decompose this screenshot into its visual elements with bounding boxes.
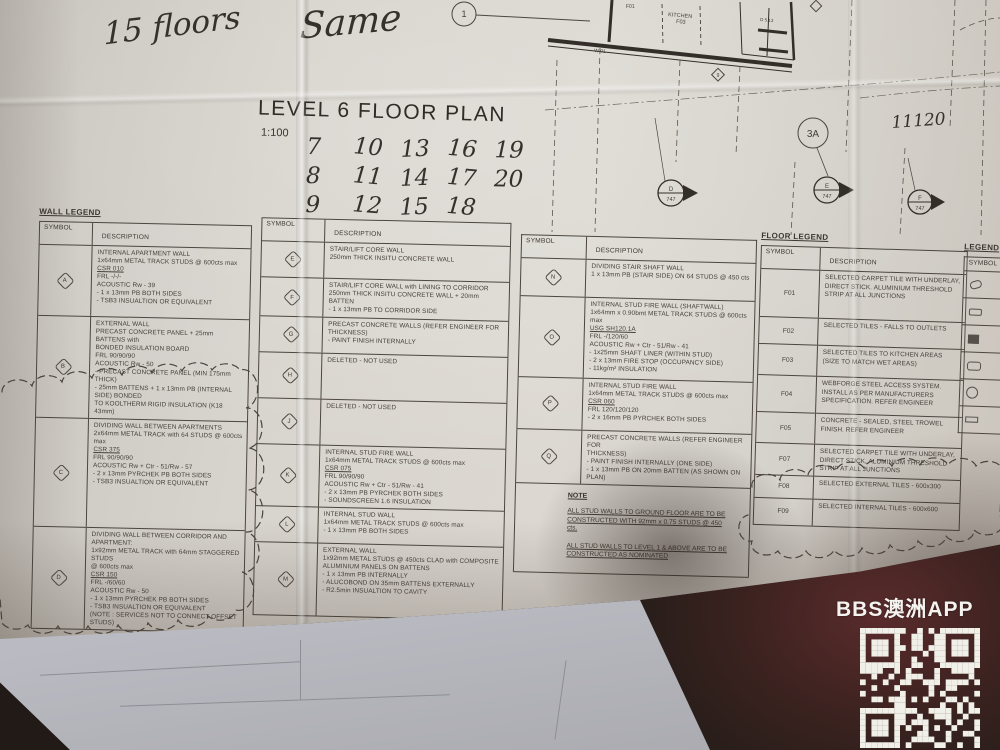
wall-symbol-badge: M [276, 570, 294, 588]
legend-row: HDELETED - NOT USED [258, 351, 507, 403]
symbol-cell: A [38, 245, 92, 316]
svg-text:747: 747 [822, 194, 831, 200]
section-marker-e: E 747 [814, 177, 854, 203]
symbol-cell: D [32, 527, 87, 629]
description-cell: INTERNAL STUD FIRE WALL1x64mm METAL TRAC… [582, 379, 752, 434]
handwritten-number: 12 [351, 191, 400, 221]
description-cell: INTERNAL STUD WALL1x64mm METAL TRACK STU… [318, 508, 504, 547]
floor-code-f01: F01 [626, 4, 635, 10]
description-text: CONCRETE - SEALED, STEEL TROWEL FINISH. … [820, 417, 957, 438]
description-cell: DELETED - NOT USED [320, 400, 506, 449]
handwritten-number: 10 [352, 133, 401, 163]
watermark-brand: BBS澳洲APP [836, 593, 974, 623]
symbol-cell: H [258, 352, 322, 398]
legend-row: LINTERNAL STUD WALL1x64mm METAL TRACK ST… [255, 505, 504, 547]
drawing-scale: 1:100 [261, 127, 289, 140]
description-cell: DIVIDING STAIR SHAFT WALL1 x 13mm PB (ST… [586, 260, 756, 301]
description-text: WEBFORGE STEEL ACCESS SYSTEM. INSTALL AS… [821, 380, 959, 410]
description-text: SELECTED TILES - FALLS TO OUTLETS [823, 322, 960, 335]
legend-row: F05CONCRETE - SEALED, STEEL TROWEL FINIS… [756, 411, 962, 448]
wall-symbol-badge: N [544, 268, 562, 286]
description-cell: CONCRETE - SEALED, STEEL TROWEL FINISH. … [815, 414, 962, 448]
description-text: SELECTED TILES TO KITCHEN AREAS (SIZE TO… [822, 349, 959, 370]
description-line: DELETED - NOT USED [326, 403, 502, 415]
description-cell: DIVIDING WALL BETWEEN CORRIDOR AND APART… [85, 528, 245, 632]
floor-legend-table: SYMBOLDESCRIPTIONF01SELECTED CARPET TILE… [753, 245, 968, 531]
legend-symbol-glyph [968, 334, 979, 343]
handwritten-number: 9 [305, 192, 352, 219]
legend-header-row: SYMBOLDESCRIPTION [40, 222, 251, 248]
svg-text:747: 747 [666, 197, 675, 203]
svg-text:E: E [825, 184, 829, 190]
symbol-cell: O [519, 296, 586, 378]
wall-legend-2-table: SYMBOLDESCRIPTIONESTAIR/LIFT CORE WALL25… [253, 217, 512, 621]
svg-text:747: 747 [915, 206, 924, 212]
handwritten-dimension: 11120 [891, 109, 947, 133]
description-cell: INTERNAL APARTMENT WALL1x64mm METAL TRAC… [91, 246, 250, 319]
wall-symbol-badge: Q [540, 447, 558, 465]
symbol-cell: C [34, 418, 89, 527]
description-cell: SELECTED TILES - FALLS TO OUTLETS [818, 319, 965, 349]
description-line: - 1 x 13mm PB ON 20mm BATTEN (AS SHOWN O… [586, 466, 746, 486]
description-cell: INTERNAL STUD FIRE WALL1x64mm METAL TRAC… [319, 446, 505, 511]
wall-symbol-badge: K [279, 466, 297, 484]
grid-bubble-1-label: 1 [461, 9, 466, 19]
door-tag: D 5.13 [760, 17, 774, 23]
symbol-cell: F [260, 277, 324, 316]
side-legend-title: LEGEND [964, 242, 1000, 253]
photo-of-architectural-drawing: 15 floors Same 7101316198111417209121518… [0, 0, 1000, 750]
under-sheet-line [300, 640, 301, 700]
symbol-cell: N [521, 258, 587, 297]
description-cell: INTERNAL STUD FIRE WALL (SHAFTWALL)1x64m… [584, 298, 755, 382]
wall-legend-section: WALL LEGEND SYMBOLDESCRIPTIONAINTERNAL A… [31, 207, 253, 633]
symbol-cell: B [36, 316, 91, 418]
svg-text:D: D [669, 187, 674, 193]
symbol-cell: F01 [760, 269, 820, 318]
description-text: SELECTED CARPET TILE WITH UNDERLAY, DIRE… [819, 448, 957, 478]
wall-symbol-badge: L [277, 515, 295, 533]
wall-symbol-badge: H [281, 366, 299, 384]
symbol-cell: K [256, 444, 320, 506]
description-text: SELECTED CARPET TILE WITH UNDERLAY, DIRE… [824, 274, 962, 304]
description-line: TO KOOLTHERM RIGID INSULATION (K18 43mm) [94, 400, 243, 419]
legend-row: NDIVIDING STAIR SHAFT WALL1 x 13mm PB (S… [521, 257, 756, 301]
floor-legend-section: FLOOR LEGEND SYMBOLDESCRIPTIONF01SELECTE… [753, 231, 969, 531]
description-line: - TSB3 INSUALTION OR EQUIVALENT [93, 478, 242, 489]
handwritten-same-note: Same [299, 0, 402, 48]
legend-symbol-glyph [966, 386, 978, 398]
symbol-cell: F03 [758, 344, 818, 376]
description-line: (NOTE : SERVICES NOT TO CONNECT OFFSET S… [90, 611, 239, 630]
description-text: SELECTED INTERNAL TILES - 600x600 [818, 502, 955, 515]
side-legend-section: LEGEND SYMBOL [958, 242, 1000, 434]
legend-row: FSTAIR/LIFT CORE WALL with LINING TO COR… [260, 276, 509, 321]
legend-row: F04WEBFORGE STEEL ACCESS SYSTEM. INSTALL… [757, 374, 963, 417]
note-title: NOTE [568, 492, 740, 503]
legend-row: AINTERNAL APARTMENT WALL1x64mm METAL TRA… [38, 244, 250, 319]
section-marker-f: F 747 [908, 158, 945, 214]
legend-row: ESTAIR/LIFT CORE WALL250mm THICK INSITU … [261, 240, 510, 282]
legend-row: KINTERNAL STUD FIRE WALL1x64mm METAL TRA… [256, 443, 505, 511]
symbol-cell: P [517, 377, 583, 430]
wall-symbol-badge: J [280, 412, 298, 430]
symbol-cell: F04 [757, 375, 817, 413]
wall-symbol-badge: B [54, 358, 72, 376]
legend-row: JDELETED - NOT USED [257, 397, 506, 449]
legend-row: F03SELECTED TILES TO KITCHEN AREAS (SIZE… [758, 343, 964, 380]
wall-symbol-badge: P [541, 394, 559, 412]
legend-symbol-glyph [965, 416, 978, 422]
wall-legend-3-section: SYMBOLDESCRIPTIONNDIVIDING STAIR SHAFT W… [513, 234, 757, 578]
side-legend-header: SYMBOL [964, 257, 997, 271]
legend-row: F01SELECTED CARPET TILE WITH UNDERLAY, D… [760, 268, 966, 322]
description-cell: DELETED - NOT USED [321, 354, 507, 403]
description-text: SELECTED EXTERNAL TILES - 600x300 [819, 479, 956, 492]
symbol-cell: G [260, 316, 324, 352]
description-cell: EXTERNAL WALL1x92mm METAL STUDS @ 450cts… [317, 544, 504, 620]
note-paragraph: ALL STUD WALLS TO LEVEL 1 & ABOVE ARE TO… [566, 542, 728, 563]
handwritten-number: 11 [352, 162, 401, 192]
wall-legend-3-table: SYMBOLDESCRIPTIONNDIVIDING STAIR SHAFT W… [516, 235, 756, 488]
symbol-cell: Q [516, 429, 582, 484]
legend-symbol-glyph [969, 308, 982, 315]
symbol-cell: F05 [756, 412, 816, 444]
wall-legend-table: SYMBOLDESCRIPTIONAINTERNAL APARTMENT WAL… [31, 221, 252, 633]
symbol-cell: F09 [754, 497, 814, 525]
description-cell: PRECAST CONCRETE WALLS (REFER ENGINEER F… [581, 431, 751, 488]
note-block: NOTE ALL STUD WALLS TO GROUND FLOOR ARE … [514, 482, 750, 577]
description-cell: STAIR/LIFT CORE WALL with LINING TO CORR… [323, 279, 509, 321]
description-cell: SELECTED CARPET TILE WITH UNDERLAY, DIRE… [819, 271, 966, 322]
watermark-qr-code [860, 628, 980, 748]
legend-row: QPRECAST CONCRETE WALLS (REFER ENGINEER … [516, 428, 751, 488]
symbol-cell: L [255, 506, 319, 542]
legend-row: PINTERNAL STUD FIRE WALL1x64mm METAL TRA… [517, 376, 752, 434]
marker-9-label: 9 [717, 73, 720, 79]
floor-plan-fragment: 1 KITCHEN F03 F01 W 01 D 5.13 [440, 0, 1000, 235]
description-cell: SELECTED INTERNAL TILES - 600x600 [813, 499, 960, 529]
wall-symbol-badge: D [49, 569, 67, 587]
note-paragraph: ALL STUD WALLS TO GROUND FLOOR ARE TO BE… [567, 507, 730, 536]
symbol-cell: F07 [755, 443, 815, 475]
legend-row: MEXTERNAL WALL1x92mm METAL STUDS @ 450ct… [254, 541, 504, 620]
legend-symbol-glyph [969, 279, 983, 290]
wall-legend-title: WALL LEGEND [39, 207, 252, 220]
symbol-cell: E [261, 241, 325, 277]
legend-row: GPRECAST CONCRETE WALLS (REFER ENGINEER … [260, 315, 509, 357]
grid-bubble-3a-label: 3A [807, 129, 820, 140]
legend-row: BEXTERNAL WALLPRECAST CONCRETE PANEL + 2… [36, 315, 249, 421]
legend-row: OINTERNAL STUD FIRE WALL (SHAFTWALL)1x64… [519, 295, 755, 382]
symbol-cell: J [257, 398, 321, 444]
symbol-cell: F02 [759, 317, 819, 345]
wall-symbol-badge: O [542, 328, 560, 346]
description-line: - TSB3 INSUALTION OR EQUIVALENT [96, 297, 245, 308]
section-marker-d: D 747 [655, 118, 698, 206]
kitchen-floor-code: F03 [676, 19, 686, 26]
description-cell: SELECTED CARPET TILE WITH UNDERLAY, DIRE… [814, 445, 961, 480]
wall-symbol-badge: F [283, 288, 301, 306]
wall-symbol-badge: C [52, 463, 70, 481]
wall-legend-2-section: SYMBOLDESCRIPTIONESTAIR/LIFT CORE WALL25… [253, 217, 512, 621]
legend-row: CDIVIDING WALL BETWEEN APARTMENTS2x64mm … [34, 417, 247, 530]
wall-symbol-badge: E [283, 250, 301, 268]
description-line: DELETED - NOT USED [327, 357, 503, 369]
description-cell: PRECAST CONCRETE WALLS (REFER ENGINEER F… [322, 318, 508, 357]
description-cell: WEBFORGE STEEL ACCESS SYSTEM. INSTALL AS… [816, 377, 963, 417]
symbol-cell: F08 [755, 474, 815, 498]
description-cell: DIVIDING WALL BETWEEN APARTMENTS2x64mm M… [87, 419, 247, 530]
handwritten-number: 8 [306, 163, 353, 190]
description-cell: SELECTED EXTERNAL TILES - 600x300 [813, 476, 960, 502]
wall-symbol-badge: G [282, 325, 300, 343]
handwritten-floors-note: 15 floors [103, 0, 241, 53]
legend-symbol-glyph [967, 361, 981, 370]
legend-row: DDIVIDING WALL BETWEEN CORRIDOR AND APAR… [32, 526, 245, 632]
legend-row: F07SELECTED CARPET TILE WITH UNDERLAY, D… [755, 442, 961, 480]
description-cell: EXTERNAL WALLPRECAST CONCRETE PANEL + 25… [89, 317, 249, 421]
description-cell: STAIR/LIFT CORE WALL250mm THICK INSITU C… [324, 243, 510, 282]
symbol-cell: M [254, 542, 319, 615]
handwritten-number: 7 [306, 134, 353, 161]
svg-text:F: F [918, 196, 922, 202]
wall-symbol-badge: A [56, 271, 74, 289]
description-cell: SELECTED TILES TO KITCHEN AREAS (SIZE TO… [817, 346, 964, 380]
